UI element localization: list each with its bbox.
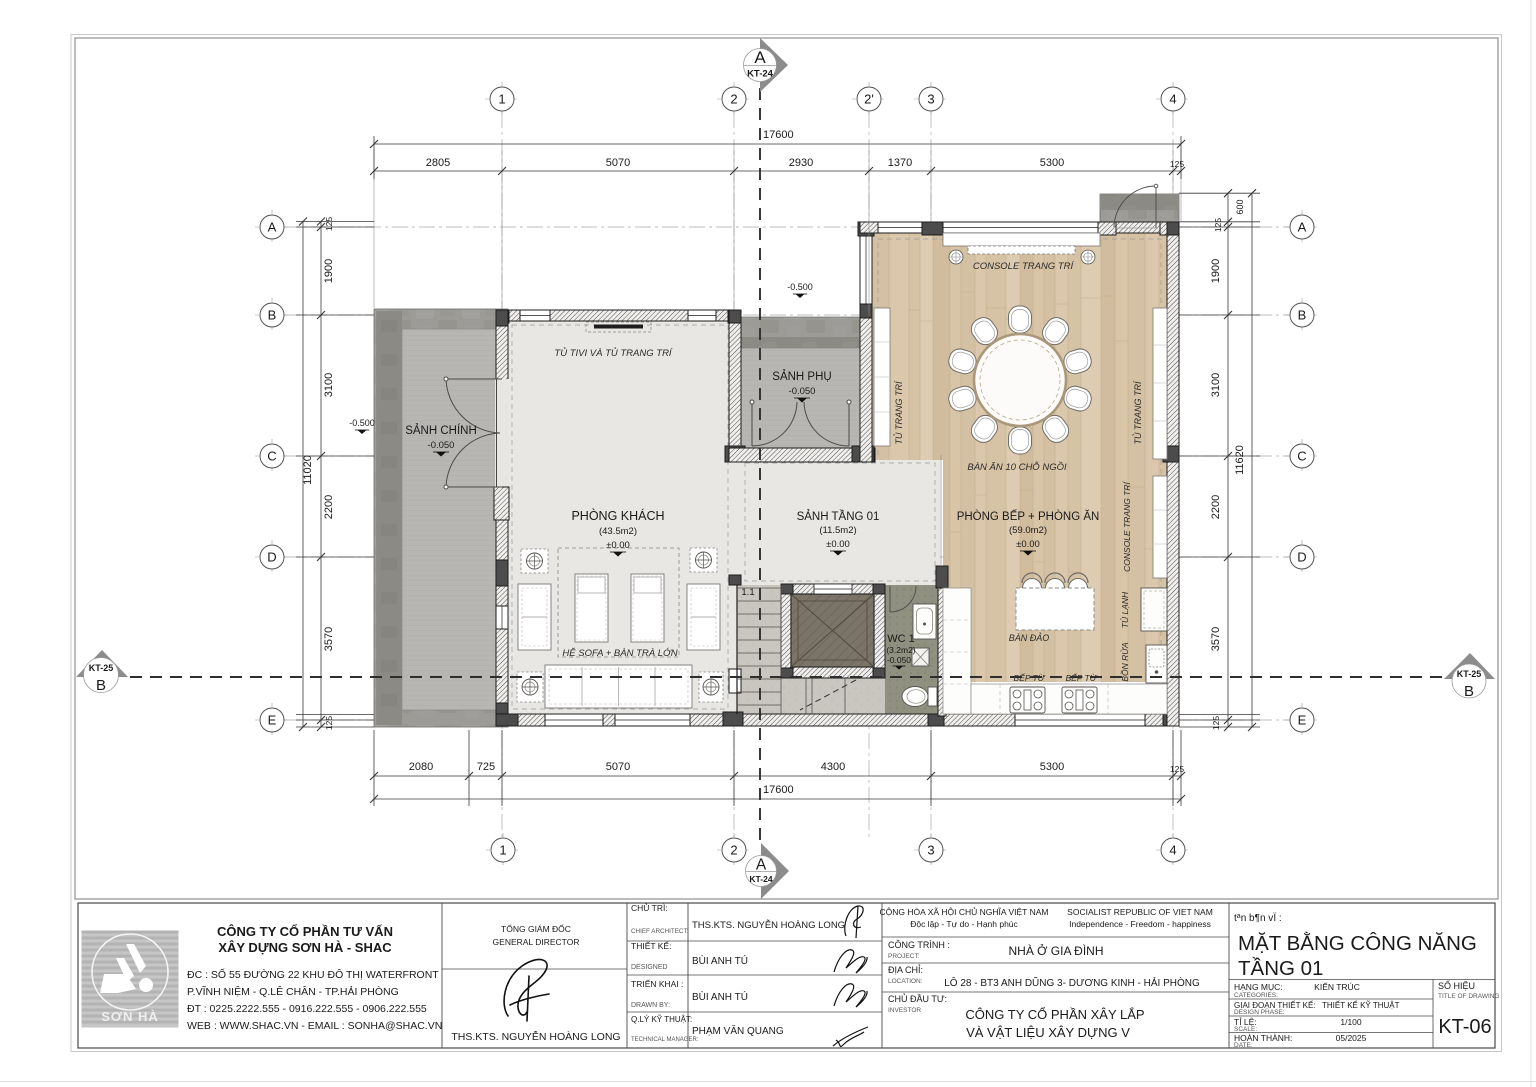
svg-text:-0.050: -0.050 xyxy=(789,386,816,397)
svg-text:A: A xyxy=(754,48,766,67)
svg-text:SẢNH CHÍNH: SẢNH CHÍNH xyxy=(405,424,477,437)
svg-text:1900: 1900 xyxy=(1210,259,1222,283)
svg-text:1370: 1370 xyxy=(888,157,912,169)
svg-text:1: 1 xyxy=(498,92,505,107)
svg-text:CÔNG TY CỔ PHẦN XÂY LẮP: CÔNG TY CỔ PHẦN XÂY LẮP xyxy=(965,1007,1144,1022)
svg-text:C: C xyxy=(1297,449,1306,464)
svg-text:±0.00: ±0.00 xyxy=(606,540,630,551)
svg-text:±0.00: ±0.00 xyxy=(1016,539,1040,550)
svg-text:XÂY DỰNG SƠN HÀ - SHAC: XÂY DỰNG SƠN HÀ - SHAC xyxy=(218,940,392,955)
svg-text:2: 2 xyxy=(730,92,737,107)
svg-text:B: B xyxy=(1298,308,1307,323)
svg-text:5070: 5070 xyxy=(606,157,630,169)
svg-text:TẦNG 01: TẦNG 01 xyxy=(1238,957,1323,980)
svg-text:(3.2m2): (3.2m2) xyxy=(886,645,915,655)
svg-text:Độc lập - Tự do - Hạnh phúc: Độc lập - Tự do - Hạnh phúc xyxy=(910,919,1018,929)
svg-text:2930: 2930 xyxy=(789,157,813,169)
svg-text:B: B xyxy=(268,308,277,323)
svg-text:PHÒNG BẾP + PHÒNG ĂN: PHÒNG BẾP + PHÒNG ĂN xyxy=(957,510,1100,523)
svg-text:CONSOLE TRANG TRÍ: CONSOLE TRANG TRÍ xyxy=(973,261,1075,272)
svg-text:BÙI ANH TÚ: BÙI ANH TÚ xyxy=(692,954,748,967)
svg-text:INVESTOR: INVESTOR xyxy=(888,1007,921,1014)
svg-text:THS.KTS. NGUYỄN HOÀNG LONG: THS.KTS. NGUYỄN HOÀNG LONG xyxy=(692,919,845,931)
svg-text:4: 4 xyxy=(1169,92,1176,107)
svg-text:125: 125 xyxy=(1170,764,1184,774)
svg-text:KT-24: KT-24 xyxy=(749,874,772,884)
svg-text:5300: 5300 xyxy=(1040,157,1064,169)
svg-text:WC 1: WC 1 xyxy=(887,633,915,645)
svg-text:2': 2' xyxy=(864,92,874,107)
svg-text:CHỦ TRÌ:: CHỦ TRÌ: xyxy=(631,902,668,913)
svg-text:±0.00: ±0.00 xyxy=(826,539,850,550)
svg-text:1900: 1900 xyxy=(323,259,335,283)
svg-text:HẠNG MỤC:: HẠNG MỤC: xyxy=(1234,982,1283,992)
svg-text:THIẾT KẾ:: THIẾT KẾ: xyxy=(631,941,671,951)
svg-text:CỘNG HÒA XÃ HỘI CHỦ NGHĨA VIỆT: CỘNG HÒA XÃ HỘI CHỦ NGHĨA VIỆT NAM xyxy=(880,906,1049,917)
svg-text:PHẠM VĂN QUANG: PHẠM VĂN QUANG xyxy=(692,1024,784,1037)
svg-text:TỔNG GIÁM ĐỐC: TỔNG GIÁM ĐỐC xyxy=(501,923,571,934)
svg-text:125: 125 xyxy=(1170,159,1184,169)
svg-text:1: 1 xyxy=(499,843,506,858)
svg-text:17600: 17600 xyxy=(763,784,794,796)
svg-text:DESIGN PHASE:: DESIGN PHASE: xyxy=(1234,1009,1285,1016)
svg-text:TITLE OF DRAWING: TITLE OF DRAWING xyxy=(1438,993,1500,1000)
svg-text:TECHNICAL MANAGER:: TECHNICAL MANAGER: xyxy=(631,1037,699,1043)
svg-text:GENERAL DIRECTOR: GENERAL DIRECTOR xyxy=(493,937,580,947)
svg-text:VÀ VẬT LIỆU XÂY DỰNG V: VÀ VẬT LIỆU XÂY DỰNG V xyxy=(966,1025,1130,1040)
svg-text:THIẾT KẾ KỸ THUẬT: THIẾT KẾ KỸ THUẬT xyxy=(1322,1000,1400,1010)
svg-text:-0.500: -0.500 xyxy=(349,418,375,428)
svg-text:P.VĨNH NIỆM - Q.LÊ CHÂN - TP.H: P.VĨNH NIỆM - Q.LÊ CHÂN - TP.HẢI PHÒNG xyxy=(187,985,399,998)
svg-text:KT-06: KT-06 xyxy=(1438,1016,1491,1038)
svg-text:KT-25: KT-25 xyxy=(1457,669,1482,679)
svg-text:-0.500: -0.500 xyxy=(787,282,813,292)
svg-text:DRAWN BY:: DRAWN BY: xyxy=(631,1002,670,1009)
svg-text:4: 4 xyxy=(1169,843,1176,858)
svg-text:SẢNH TẦNG 01: SẢNH TẦNG 01 xyxy=(797,510,880,523)
svg-text:5070: 5070 xyxy=(606,761,630,773)
svg-text:BÀN ĐẢO: BÀN ĐẢO xyxy=(1009,632,1050,643)
svg-text:DATE:: DATE: xyxy=(1234,1042,1253,1049)
svg-text:SOCIALIST REPUBLIC OF VIET NAM: SOCIALIST REPUBLIC OF VIET NAM xyxy=(1067,907,1213,917)
svg-text:D: D xyxy=(267,550,276,565)
svg-text:PROJECT:: PROJECT: xyxy=(888,953,920,960)
svg-text:TỦ TIVI VÀ TỦ TRANG TRÍ: TỦ TIVI VÀ TỦ TRANG TRÍ xyxy=(554,347,673,359)
svg-text:B: B xyxy=(1464,683,1474,700)
svg-text:11020: 11020 xyxy=(302,455,314,485)
svg-text:TỦ TRANG TRÍ: TỦ TRANG TRÍ xyxy=(893,380,904,444)
svg-text:KT-24: KT-24 xyxy=(747,69,774,80)
svg-text:A: A xyxy=(1298,220,1307,235)
svg-text:2200: 2200 xyxy=(323,495,335,519)
svg-text:Independence - Freedom - happi: Independence - Freedom - happiness xyxy=(1069,919,1211,929)
svg-text:-0.050: -0.050 xyxy=(887,655,911,665)
svg-text:4300: 4300 xyxy=(821,761,845,773)
svg-text:KT-25: KT-25 xyxy=(89,663,114,673)
svg-text:ĐT : 0225.2222.555 - 0916.222.: ĐT : 0225.2222.555 - 0916.222.555 - 0906… xyxy=(187,1003,427,1015)
svg-text:tan b¶n vÏ :: tan b¶n vÏ : xyxy=(1234,912,1282,924)
svg-text:3100: 3100 xyxy=(323,373,335,397)
svg-text:1/100: 1/100 xyxy=(1340,1017,1362,1027)
svg-text:PHÒNG KHÁCH: PHÒNG KHÁCH xyxy=(571,508,664,523)
svg-text:05/2025: 05/2025 xyxy=(1336,1033,1367,1043)
svg-text:CONSOLE TRANG TRÍ: CONSOLE TRANG TRÍ xyxy=(1122,480,1132,571)
svg-text:CATEGORIES:: CATEGORIES: xyxy=(1234,992,1278,999)
svg-text:LOCATION:: LOCATION: xyxy=(888,978,923,985)
svg-text:A: A xyxy=(756,857,767,874)
svg-text:725: 725 xyxy=(477,761,495,773)
svg-text:TRIỂN KHAI :: TRIỂN KHAI : xyxy=(631,978,683,989)
svg-text:BỒN RỬA: BỒN RỬA xyxy=(1119,642,1130,682)
svg-text:(11.5m2): (11.5m2) xyxy=(819,525,856,536)
svg-text:125: 125 xyxy=(1213,218,1223,232)
svg-text:2080: 2080 xyxy=(409,761,433,773)
svg-text:DESIGNED: DESIGNED xyxy=(631,964,668,971)
svg-text:TỦ TRANG TRÍ: TỦ TRANG TRÍ xyxy=(1132,380,1143,444)
svg-text:125: 125 xyxy=(324,217,334,231)
svg-text:3570: 3570 xyxy=(1210,627,1222,651)
svg-text:SƠN HÀ: SƠN HÀ xyxy=(101,1009,159,1024)
svg-text:BÀN ĂN 10 CHỖ NGỒI: BÀN ĂN 10 CHỖ NGỒI xyxy=(967,461,1067,473)
svg-text:SCALE:: SCALE: xyxy=(1234,1026,1257,1033)
svg-text:(59.0m2): (59.0m2) xyxy=(1009,525,1047,536)
svg-text:125: 125 xyxy=(1211,716,1221,730)
svg-text:A: A xyxy=(268,220,277,235)
svg-text:3: 3 xyxy=(927,843,934,858)
svg-text:1.1: 1.1 xyxy=(741,587,754,598)
svg-text:E: E xyxy=(1298,713,1307,728)
svg-text:SẢNH PHỤ: SẢNH PHỤ xyxy=(772,370,831,383)
svg-text:TỦ LẠNH: TỦ LẠNH xyxy=(1119,591,1130,628)
svg-text:Q.LÝ KỸ THUẬT:: Q.LÝ KỸ THUẬT: xyxy=(631,1015,692,1024)
svg-text:KIẾN TRÚC: KIẾN TRÚC xyxy=(1314,982,1360,992)
svg-text:17600: 17600 xyxy=(763,129,794,141)
svg-text:CÔNG TY CỔ PHẦN TƯ VẤN: CÔNG TY CỔ PHẦN TƯ VẤN xyxy=(217,924,393,939)
svg-text:NHÀ Ở GIA ĐÌNH: NHÀ Ở GIA ĐÌNH xyxy=(1009,943,1104,958)
svg-text:(43.5m2): (43.5m2) xyxy=(599,526,637,537)
svg-text:600: 600 xyxy=(1235,199,1245,214)
svg-text:11620: 11620 xyxy=(1234,445,1246,475)
svg-text:E: E xyxy=(268,713,277,728)
svg-text:2200: 2200 xyxy=(1210,495,1222,519)
svg-text:-0.050: -0.050 xyxy=(428,440,455,451)
svg-text:3: 3 xyxy=(927,92,934,107)
svg-text:THS.KTS. NGUYỄN HOÀNG LONG: THS.KTS. NGUYỄN HOÀNG LONG xyxy=(451,1030,620,1043)
svg-text:HỆ SOFA + BÀN TRÀ LỚN: HỆ SOFA + BÀN TRÀ LỚN xyxy=(562,648,677,659)
svg-text:ĐC : SỐ 55 ĐƯỜNG 22 KHU ĐÔ THỊ: ĐC : SỐ 55 ĐƯỜNG 22 KHU ĐÔ THỊ WATERFRON… xyxy=(187,967,439,981)
svg-text:2805: 2805 xyxy=(426,157,450,169)
svg-text:CHIEF ARCHITECT:: CHIEF ARCHITECT: xyxy=(631,928,689,935)
svg-text:WEB : WWW.SHAC.VN - EMAIL : SO: WEB : WWW.SHAC.VN - EMAIL : SONHA@SHAC.V… xyxy=(187,1020,442,1032)
svg-text:5300: 5300 xyxy=(1040,761,1064,773)
svg-text:B: B xyxy=(96,677,106,694)
svg-text:CHỦ ĐẦU TƯ:: CHỦ ĐẦU TƯ: xyxy=(888,993,947,1004)
svg-text:LÔ 28 - BT3 ANH DŨNG 3- DƯƠNG: LÔ 28 - BT3 ANH DŨNG 3- DƯƠNG KINH - HẢI… xyxy=(944,976,1200,989)
svg-text:CÔNG TRÌNH :: CÔNG TRÌNH : xyxy=(888,940,950,950)
svg-text:BÙI ANH TÚ: BÙI ANH TÚ xyxy=(692,990,748,1003)
svg-text:MẶT BẰNG CÔNG NĂNG: MẶT BẰNG CÔNG NĂNG xyxy=(1238,931,1477,955)
svg-text:3570: 3570 xyxy=(323,627,335,651)
svg-text:SỐ HIỆU: SỐ HIỆU xyxy=(1438,980,1475,991)
svg-text:2: 2 xyxy=(730,843,737,858)
svg-text:3100: 3100 xyxy=(1210,373,1222,397)
svg-text:C: C xyxy=(267,449,276,464)
svg-text:D: D xyxy=(1297,550,1306,565)
svg-text:125: 125 xyxy=(324,716,334,730)
svg-text:ĐỊA CHỈ:: ĐỊA CHỈ: xyxy=(888,964,923,975)
